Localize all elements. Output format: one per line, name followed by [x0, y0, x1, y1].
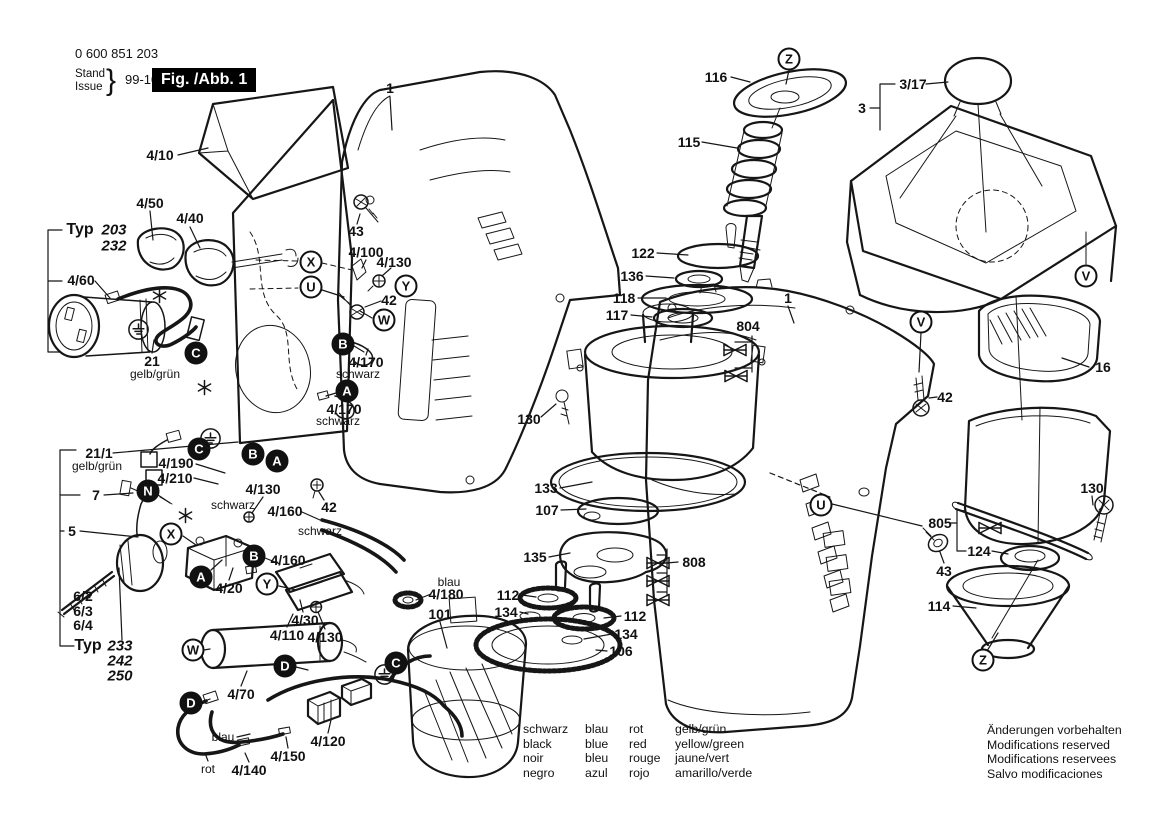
index-marker-Y: Y — [256, 573, 279, 596]
index-marker-U: U — [810, 494, 833, 517]
callout-4-210: 4/210 — [157, 470, 192, 486]
callout-rot: rot — [201, 762, 215, 776]
callout-42: 42 — [381, 292, 397, 308]
index-marker-B: B — [243, 545, 266, 568]
index-marker-Z: Z — [972, 649, 995, 672]
callout-135: 135 — [523, 549, 546, 565]
notice-line: Änderungen vorbehalten — [987, 723, 1122, 738]
index-marker-D: D — [274, 655, 297, 678]
legend-term: gelb/grün — [675, 722, 752, 737]
part-right-housing — [646, 279, 934, 732]
index-marker-A: A — [336, 380, 359, 403]
callout-1: 1 — [386, 80, 394, 96]
callout-Typ: Typ — [66, 221, 93, 239]
callout-136: 136 — [620, 268, 643, 284]
diagram-artwork — [0, 0, 1168, 826]
legend-term: rojo — [629, 766, 675, 781]
index-marker-X: X — [160, 523, 183, 546]
callout-232: 232 — [101, 238, 126, 255]
legend-term: amarillo/verde — [675, 766, 752, 781]
legend-term: noir — [523, 751, 585, 766]
callout-4-160: 4/160 — [270, 552, 305, 568]
callout-schwarz: schwarz — [211, 498, 255, 512]
index-marker-D: D — [180, 692, 203, 715]
callout-42: 42 — [937, 389, 953, 405]
callout-schwarz: schwarz — [298, 524, 342, 538]
callout-112: 112 — [624, 608, 647, 624]
legend-term: yellow/green — [675, 737, 752, 752]
callout-4-140: 4/140 — [231, 762, 266, 778]
callout-122: 122 — [631, 245, 654, 261]
callout-4-120: 4/120 — [310, 733, 345, 749]
callout-6-2: 6/2 — [73, 588, 92, 604]
callout-4-40: 4/40 — [176, 210, 203, 226]
legend-term: schwarz — [523, 722, 585, 737]
part-chute-cover — [199, 87, 348, 199]
index-marker-A: A — [190, 566, 213, 589]
callout-4-30: 4/30 — [291, 612, 318, 628]
legend-term: negro — [523, 766, 585, 781]
callout-3-17: 3/17 — [899, 76, 926, 92]
callout-805: 805 — [928, 515, 951, 531]
callout-130: 130 — [1080, 480, 1103, 496]
notice-line: Modifications reserved — [987, 738, 1122, 753]
order-number: 0 600 851 203 — [75, 46, 158, 61]
legend-term: rouge — [629, 751, 675, 766]
callout-133: 133 — [534, 480, 557, 496]
index-marker-W: W — [373, 309, 396, 332]
part-collection-bin — [965, 296, 1110, 544]
callout-blau: blau — [212, 730, 235, 744]
callout-6-4: 6/4 — [73, 617, 92, 633]
callout-1: 1 — [784, 290, 792, 306]
callout-4-70: 4/70 — [227, 686, 254, 702]
figure-title: Fig. /Abb. 1 — [152, 68, 256, 92]
notice-line: Salvo modificaciones — [987, 767, 1122, 782]
callout-gelb-gr-n: gelb/grün — [130, 367, 180, 381]
callout-4-50: 4/50 — [136, 195, 163, 211]
stand-label: Stand — [75, 68, 105, 81]
callout-4-190: 4/190 — [158, 455, 193, 471]
index-marker-X: X — [300, 251, 323, 274]
callout-7: 7 — [92, 487, 100, 503]
callout-4-130: 4/130 — [307, 629, 342, 645]
callout-107: 107 — [535, 502, 558, 518]
callout-250: 250 — [107, 668, 132, 685]
stand-issue-label: Stand Issue — [75, 68, 105, 94]
callout-schwarz: schwarz — [336, 367, 380, 381]
part-drum-assembly — [476, 304, 765, 671]
callout-5: 5 — [68, 523, 76, 539]
callout-43: 43 — [348, 223, 364, 239]
callout-115: 115 — [678, 134, 701, 150]
index-marker-B: B — [332, 333, 355, 356]
legend-term: red — [629, 737, 675, 752]
callout-112: 112 — [497, 587, 520, 603]
callout-3: 3 — [858, 100, 866, 116]
legend-term: azul — [585, 766, 629, 781]
callout-804: 804 — [736, 318, 759, 334]
index-marker-A: A — [266, 450, 289, 473]
color-legend: schwarzblaurotgelb/grünblackblueredyello… — [523, 722, 752, 781]
legend-term: bleu — [585, 751, 629, 766]
callout-114: 114 — [928, 598, 951, 614]
index-marker-W: W — [182, 639, 205, 662]
index-marker-V: V — [910, 311, 933, 334]
index-marker-Y: Y — [395, 275, 418, 298]
index-marker-C: C — [185, 342, 208, 365]
modifications-notice: Änderungen vorbehaltenModifications rese… — [987, 723, 1122, 781]
callout-101: 101 — [428, 606, 451, 622]
legend-term: blue — [585, 737, 629, 752]
parts-diagram-page: 0 600 851 203 Stand Issue } 99-10-07 Fig… — [0, 0, 1168, 826]
index-marker-B: B — [242, 443, 265, 466]
callout-42: 42 — [321, 499, 337, 515]
callout-4-130: 4/130 — [245, 481, 280, 497]
callout-4-160: 4/160 — [267, 503, 302, 519]
callout-4-60: 4/60 — [67, 272, 94, 288]
callout-4-110: 4/110 — [270, 627, 304, 643]
brace-glyph: } — [106, 64, 116, 98]
index-marker-V: V — [1075, 265, 1098, 288]
notice-line: Modifications reservees — [987, 752, 1122, 767]
callout-gelb-gr-n: gelb/grün — [72, 459, 122, 473]
callout-203: 203 — [101, 222, 126, 239]
index-marker-Z: Z — [778, 48, 801, 71]
callout-4-150: 4/150 — [270, 748, 305, 764]
part-left-panel — [226, 100, 352, 443]
callout-117: 117 — [606, 307, 629, 323]
callout-Typ: Typ — [74, 637, 101, 655]
part-left-housing — [338, 71, 620, 492]
part-deflector — [947, 502, 1092, 658]
legend-term: black — [523, 737, 585, 752]
legend-term: rot — [629, 722, 675, 737]
callout-4-130: 4/130 — [376, 254, 411, 270]
index-marker-U: U — [300, 276, 323, 299]
issue-label: Issue — [75, 81, 105, 94]
callout-124: 124 — [967, 543, 990, 559]
part-outlet — [979, 296, 1100, 382]
callout-118: 118 — [613, 290, 636, 306]
callout-106: 106 — [609, 643, 632, 659]
callout-4-180: 4/180 — [428, 586, 463, 602]
callout-134: 134 — [494, 604, 517, 620]
callout-134: 134 — [614, 626, 637, 642]
callout-43: 43 — [936, 563, 952, 579]
legend-term: jaune/vert — [675, 751, 752, 766]
callout-130: 130 — [517, 411, 540, 427]
part-knobs — [138, 228, 298, 285]
callout-16: 16 — [1095, 359, 1111, 375]
callout-4-20: 4/20 — [215, 580, 242, 596]
index-marker-N: N — [137, 480, 160, 503]
callout-808: 808 — [682, 554, 705, 570]
callout-4-10: 4/10 — [146, 147, 173, 163]
legend-term: blau — [585, 722, 629, 737]
callout-schwarz: schwarz — [316, 414, 360, 428]
callout-116: 116 — [705, 69, 728, 85]
